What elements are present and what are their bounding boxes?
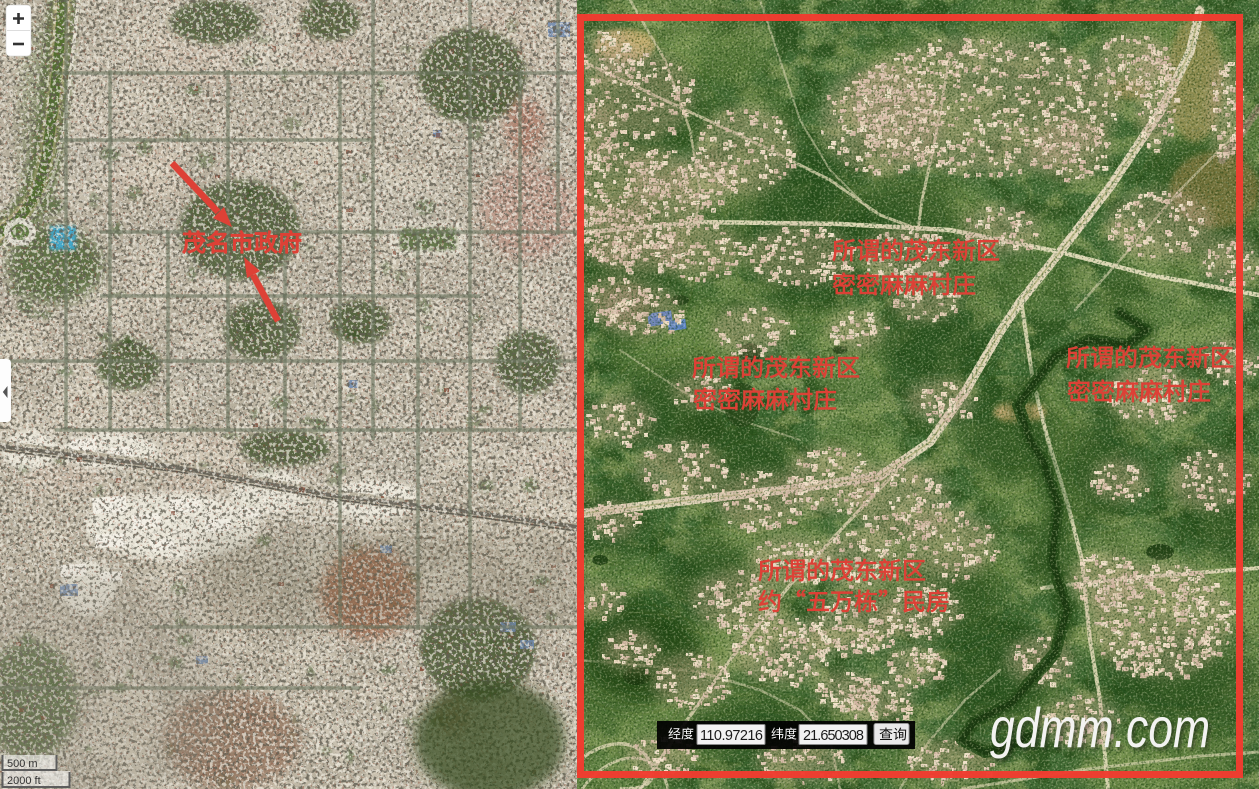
svg-text:500 m: 500 m bbox=[7, 758, 38, 770]
svg-text:gdmm.com: gdmm.com bbox=[990, 696, 1210, 759]
svg-text:2000 ft: 2000 ft bbox=[7, 775, 41, 787]
svg-text:21.650308: 21.650308 bbox=[803, 728, 864, 744]
svg-text:110.97216: 110.97216 bbox=[700, 728, 763, 744]
